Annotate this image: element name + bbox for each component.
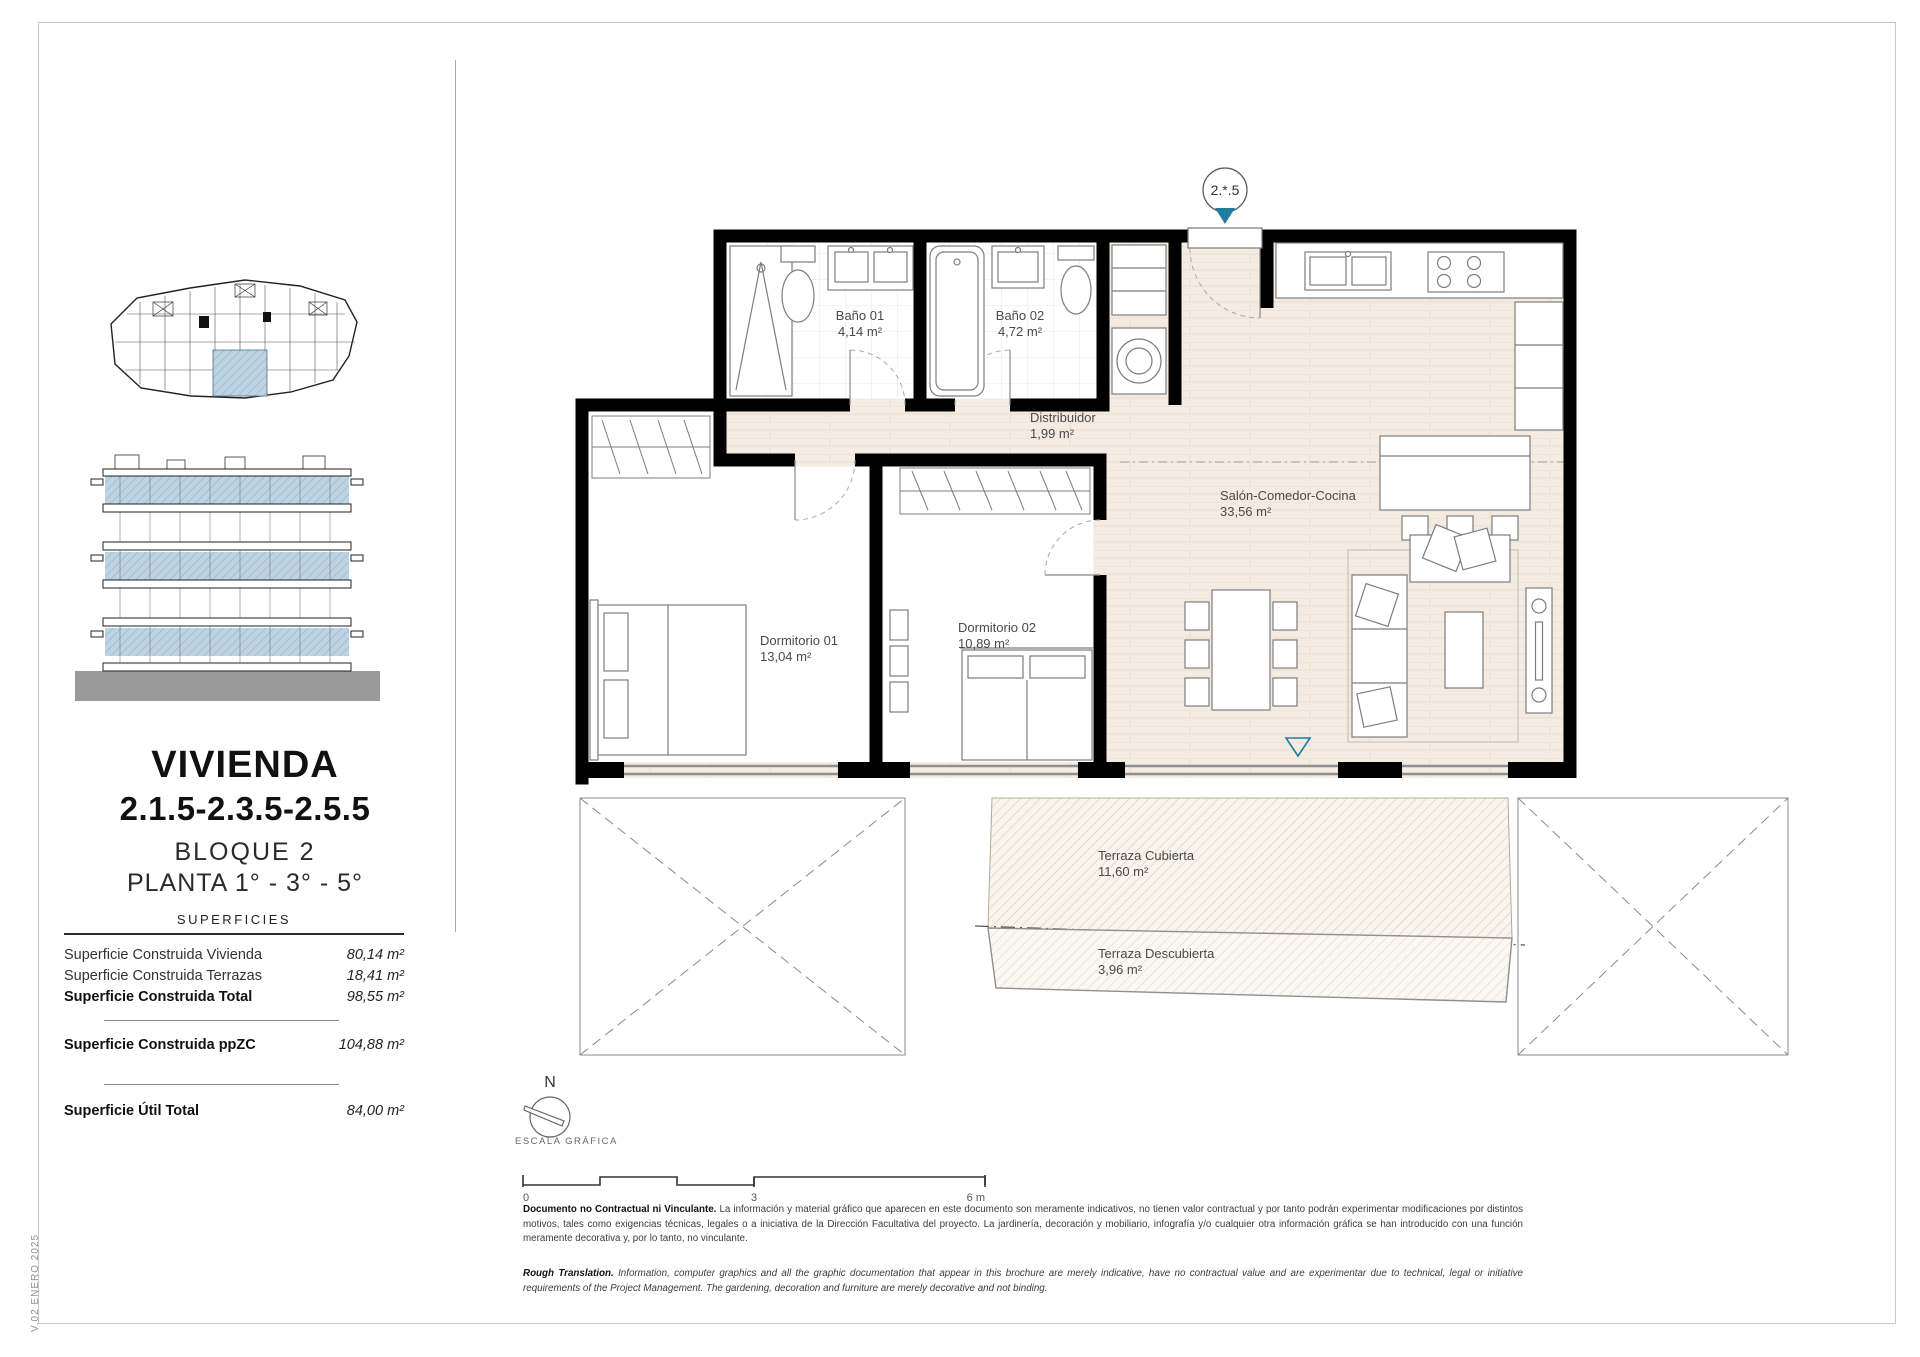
room-label-distribuidor: Distribuidor bbox=[1030, 410, 1096, 425]
room-label-bano-01: Baño 01 bbox=[836, 308, 884, 323]
terraza-descubierta-area bbox=[988, 928, 1512, 1002]
brochure-sheet: VIVIENDA 2.1.5-2.3.5-2.5.5 BLOQUE 2 PLAN… bbox=[0, 0, 1920, 1357]
table-divider bbox=[104, 1084, 339, 1085]
neighbor-terrace-right bbox=[1518, 798, 1788, 1055]
scale-tick-0: 0 bbox=[523, 1192, 529, 1203]
title-block: VIVIENDA 2.1.5-2.3.5-2.5.5 BLOQUE 2 PLAN… bbox=[55, 746, 435, 898]
scale-tick-6: 6 m bbox=[967, 1192, 985, 1203]
room-label-bano-02: Baño 02 bbox=[996, 308, 1044, 323]
floor-subtitle: PLANTA 1° - 3° - 5° bbox=[55, 869, 435, 898]
dorm-02-cabinet bbox=[890, 610, 908, 712]
room-area-dorm-01: 13,04 m² bbox=[760, 649, 812, 664]
entrance-marker-icon bbox=[1215, 208, 1235, 224]
table-row: Superficie Construida Terrazas 18,41 m² bbox=[64, 966, 404, 987]
room-label-dorm-01: Dormitorio 01 bbox=[760, 633, 838, 648]
room-label-terraza-descubierta: Terraza Descubierta bbox=[1098, 946, 1215, 961]
elevation-thumbnail bbox=[75, 445, 380, 707]
surfaces-heading: SUPERFICIES bbox=[64, 912, 404, 927]
block-subtitle: BLOQUE 2 bbox=[55, 838, 435, 867]
entrance-door bbox=[1188, 228, 1262, 248]
scale-bar-graphic: 0 3 6 m bbox=[515, 1151, 1005, 1203]
unit-code: 2.1.5-2.3.5-2.5.5 bbox=[55, 790, 435, 828]
sofa bbox=[1352, 575, 1407, 737]
dorm-01-wardrobe bbox=[592, 416, 710, 478]
dorm-02-wardrobe bbox=[900, 468, 1090, 514]
room-area-terraza-descubierta: 3,96 m² bbox=[1098, 962, 1143, 977]
highlighted-floor-bands bbox=[105, 476, 349, 656]
room-area-dorm-02: 10,89 m² bbox=[958, 636, 1010, 651]
table-row: Superficie Útil Total 84,00 m² bbox=[64, 1101, 404, 1122]
room-label-salon: Salón-Comedor-Cocina bbox=[1220, 488, 1357, 503]
table-row: Superficie Construida ppZC 104,88 m² bbox=[64, 1035, 404, 1056]
dorm-02-bed bbox=[960, 648, 1093, 760]
ground-bar bbox=[75, 671, 380, 701]
disclaimer-block: Documento no Contractual ni Vinculante. … bbox=[523, 1203, 1523, 1296]
vertical-divider bbox=[455, 60, 456, 932]
scale-tick-3: 3 bbox=[751, 1192, 757, 1203]
north-label: N bbox=[544, 1074, 556, 1091]
dining-table bbox=[1185, 590, 1297, 710]
disclaimer-en: Rough Translation. Information, computer… bbox=[523, 1267, 1523, 1296]
highlighted-unit-marker bbox=[213, 350, 267, 396]
dorm-01-bed bbox=[590, 600, 746, 760]
room-area-bano-01: 4,14 m² bbox=[838, 324, 883, 339]
unit-title: VIVIENDA bbox=[55, 746, 435, 784]
neighbor-terrace-left bbox=[580, 798, 905, 1055]
version-note: V.02 ENERO 2025 bbox=[30, 1202, 41, 1332]
table-row: Superficie Construida Total 98,55 m² bbox=[64, 987, 404, 1008]
unit-marker-label: 2.*.5 bbox=[1211, 182, 1240, 198]
room-label-terraza-cubierta: Terraza Cubierta bbox=[1098, 848, 1195, 863]
table-divider bbox=[104, 1020, 339, 1021]
room-area-terraza-cubierta: 11,60 m² bbox=[1098, 864, 1149, 879]
tv-console bbox=[1526, 588, 1552, 713]
scale-bar: ESCALA GRÁFICA 0 3 6 m bbox=[515, 1136, 1005, 1208]
terraza-cubierta-area bbox=[988, 798, 1512, 938]
floor-plan: 2.*.5 bbox=[560, 150, 1800, 1160]
kitchen-island bbox=[1380, 436, 1530, 540]
disclaimer-es: Documento no Contractual ni Vinculante. … bbox=[523, 1203, 1523, 1247]
table-row: Superficie Construida Vivienda 80,14 m² bbox=[64, 945, 404, 966]
room-label-dorm-02: Dormitorio 02 bbox=[958, 620, 1036, 635]
room-area-bano-02: 4,72 m² bbox=[998, 324, 1043, 339]
room-area-distribuidor: 1,99 m² bbox=[1030, 426, 1075, 441]
key-plan-thumbnail bbox=[95, 258, 375, 446]
coffee-table bbox=[1445, 612, 1483, 688]
scale-label: ESCALA GRÁFICA bbox=[515, 1136, 1005, 1147]
room-area-salon: 33,56 m² bbox=[1220, 504, 1272, 519]
surfaces-rule bbox=[64, 933, 404, 935]
surfaces-table: SUPERFICIES Superficie Construida Vivien… bbox=[64, 912, 404, 1122]
